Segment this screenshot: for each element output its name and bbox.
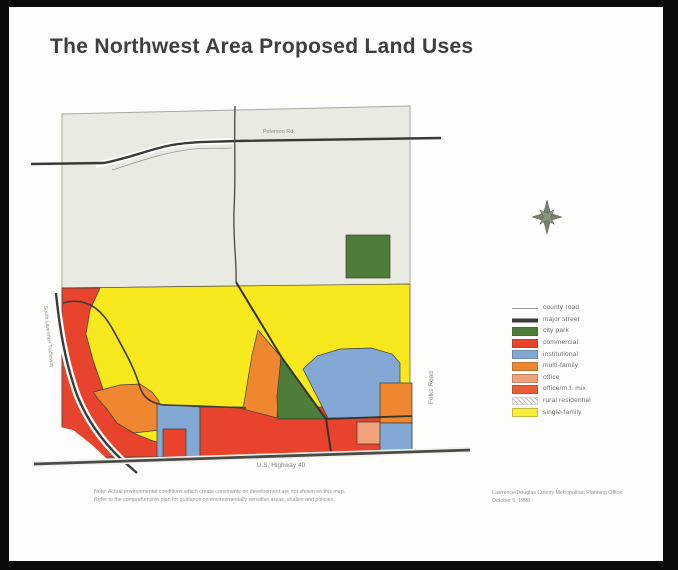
label-left-road: South Lawrence Trafficway: [42, 306, 55, 369]
zone-multi-family-center: [243, 330, 281, 418]
legend-label-multi-family: multi-family: [543, 363, 578, 370]
land-use-map: Peterson Rd U.S. Highway 40 Folks Road S…: [0, 0, 678, 570]
legend-item-major-street: major street: [512, 316, 644, 325]
road-vertical-county: [234, 106, 236, 282]
zone-commercial-left: [62, 288, 170, 457]
compass-star-diagonal: [533, 203, 561, 231]
legend-item-office: office: [512, 374, 644, 383]
legend-item-commercial: commercial: [512, 339, 644, 348]
legend-swatch-multi-family: [512, 362, 538, 371]
attribution: Lawrence/Douglas County Metropolitan Pla…: [492, 489, 652, 505]
road-inner-loop: [63, 301, 246, 408]
legend-swatch-city-park: [512, 327, 538, 336]
page-title: The Northwest Area Proposed Land Uses: [50, 34, 473, 59]
legend-swatch-rural-residential: [512, 397, 538, 405]
attribution-line-1: Lawrence/Douglas County Metropolitan Pla…: [492, 489, 652, 497]
legend-swatch-institutional: [512, 350, 538, 359]
label-bottom-highway: U.S. Highway 40: [257, 462, 306, 469]
road-right-band: [326, 416, 412, 419]
legend-label-commercial: commercial: [543, 340, 578, 347]
legend-swatch-county-road: [512, 304, 538, 313]
legend-swatch-office-mf-mix: [512, 385, 538, 394]
map-road-labels: Peterson Rd U.S. Highway 40 Folks Road S…: [42, 129, 435, 469]
legend: county roadmajor streetcity parkcommerci…: [512, 304, 644, 420]
legend-swatch-commercial: [512, 339, 538, 348]
zone-institutional-left: [157, 404, 200, 457]
road-top-street: [31, 138, 441, 164]
disclaimer-line-2: Refer to the comprehensive plan for guid…: [94, 496, 434, 504]
zone-city-park-triangle: [277, 357, 326, 419]
legend-swatch-major-street: [512, 316, 538, 325]
zone-multi-family-right-strip: [380, 383, 412, 423]
zone-institutional-center: [303, 348, 400, 418]
legend-label-city-park: city park: [543, 328, 569, 335]
label-top-road: Peterson Rd: [263, 129, 294, 135]
attribution-line-2: October 5, 1998: [492, 497, 652, 505]
legend-item-multi-family: multi-family: [512, 362, 644, 371]
disclaimer: Note: Actual environmental conditions wh…: [94, 488, 434, 504]
road-trafficway-casing: [56, 293, 137, 473]
road-bottom-highway: [34, 450, 470, 464]
zone-multi-family-left: [93, 384, 160, 433]
zone-rural-residential: [62, 106, 410, 288]
zone-city-park-upper: [346, 235, 390, 278]
label-right-road: Folks Road: [428, 371, 435, 404]
compass-star-cardinal: [532, 200, 562, 234]
zone-single-family: [62, 284, 410, 458]
legend-item-institutional: institutional: [512, 350, 644, 359]
road-trafficway: [56, 293, 137, 473]
zone-institutional-bottom-right: [380, 423, 412, 451]
legend-label-institutional: institutional: [543, 352, 578, 359]
legend-label-single-family: single-family: [543, 410, 582, 417]
legend-label-office: office: [543, 375, 560, 382]
legend-label-major-street: major street: [543, 317, 580, 324]
zone-commercial-bottom: [200, 407, 412, 458]
compass-rose-icon: [532, 200, 562, 234]
legend-item-office-mf-mix: office/m.f. mix: [512, 385, 644, 394]
map-background-wedge: [56, 426, 110, 462]
legend-swatch-single-family: [512, 408, 538, 417]
legend-item-single-family: single-family: [512, 408, 644, 417]
map-roads: [31, 106, 470, 473]
map-zones: [56, 106, 412, 462]
road-top-street-casing: [96, 141, 236, 165]
road-diagonal: [236, 282, 331, 452]
zone-commercial-notch: [163, 429, 186, 457]
legend-item-rural-residential: rural residential: [512, 397, 644, 406]
road-bottom-highway-casing: [34, 450, 470, 464]
legend-label-rural-residential: rural residential: [543, 398, 591, 405]
road-top-street-old-alignment: [112, 148, 232, 170]
legend-label-office-mf-mix: office/m.f. mix: [543, 386, 586, 393]
disclaimer-line-1: Note: Actual environmental conditions wh…: [94, 488, 434, 496]
legend-swatch-office: [512, 374, 538, 383]
zone-office-patch: [357, 422, 380, 444]
legend-item-city-park: city park: [512, 327, 644, 336]
scanned-map-page: The Northwest Area Proposed Land Uses: [9, 7, 663, 561]
legend-label-county-road: county road: [543, 305, 579, 312]
legend-item-county-road: county road: [512, 304, 644, 313]
